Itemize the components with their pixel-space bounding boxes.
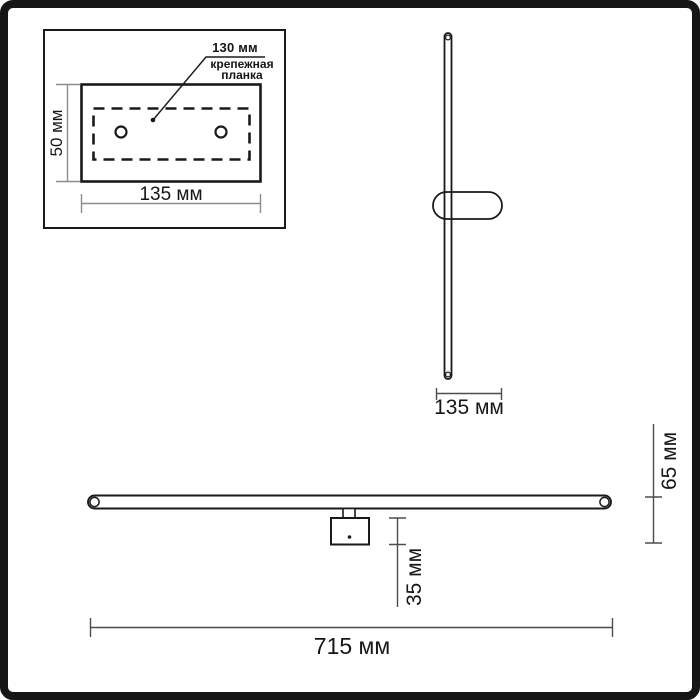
front-bar-endcap-right xyxy=(600,497,609,506)
side-rod-outline xyxy=(445,33,452,379)
mounting-plate-caption: крепежная планка xyxy=(209,59,275,81)
screw-hole-left xyxy=(116,127,127,138)
side-depth-dimension-label: 135 мм xyxy=(424,397,514,419)
side-rod-bottom-cap xyxy=(446,372,451,377)
side-canopy-capsule xyxy=(433,192,502,219)
screw-hole-right xyxy=(216,127,227,138)
overall-width-dimension-label: 715 мм xyxy=(292,634,412,658)
diagram-linework xyxy=(0,0,700,700)
diagram-canvas: 130 мм крепежная планка 50 мм 135 мм 135… xyxy=(0,0,700,700)
hole-spacing-dimension-label: 130 мм xyxy=(203,41,267,55)
side-rod-top-cap xyxy=(446,35,451,40)
overall-depth-dimension-label: 65 мм xyxy=(659,426,677,496)
plate-height-dimension-label: 50 мм xyxy=(48,103,64,163)
front-bar-outline xyxy=(88,496,611,509)
plate-width-dimension-label: 135 мм xyxy=(126,185,216,205)
canopy-box xyxy=(331,518,369,545)
front-bar-endcap-left xyxy=(90,497,99,506)
canopy-neck xyxy=(343,509,355,519)
canopy-screw-dot xyxy=(348,535,352,539)
canopy-depth-dimension-label: 35 мм xyxy=(404,542,422,612)
